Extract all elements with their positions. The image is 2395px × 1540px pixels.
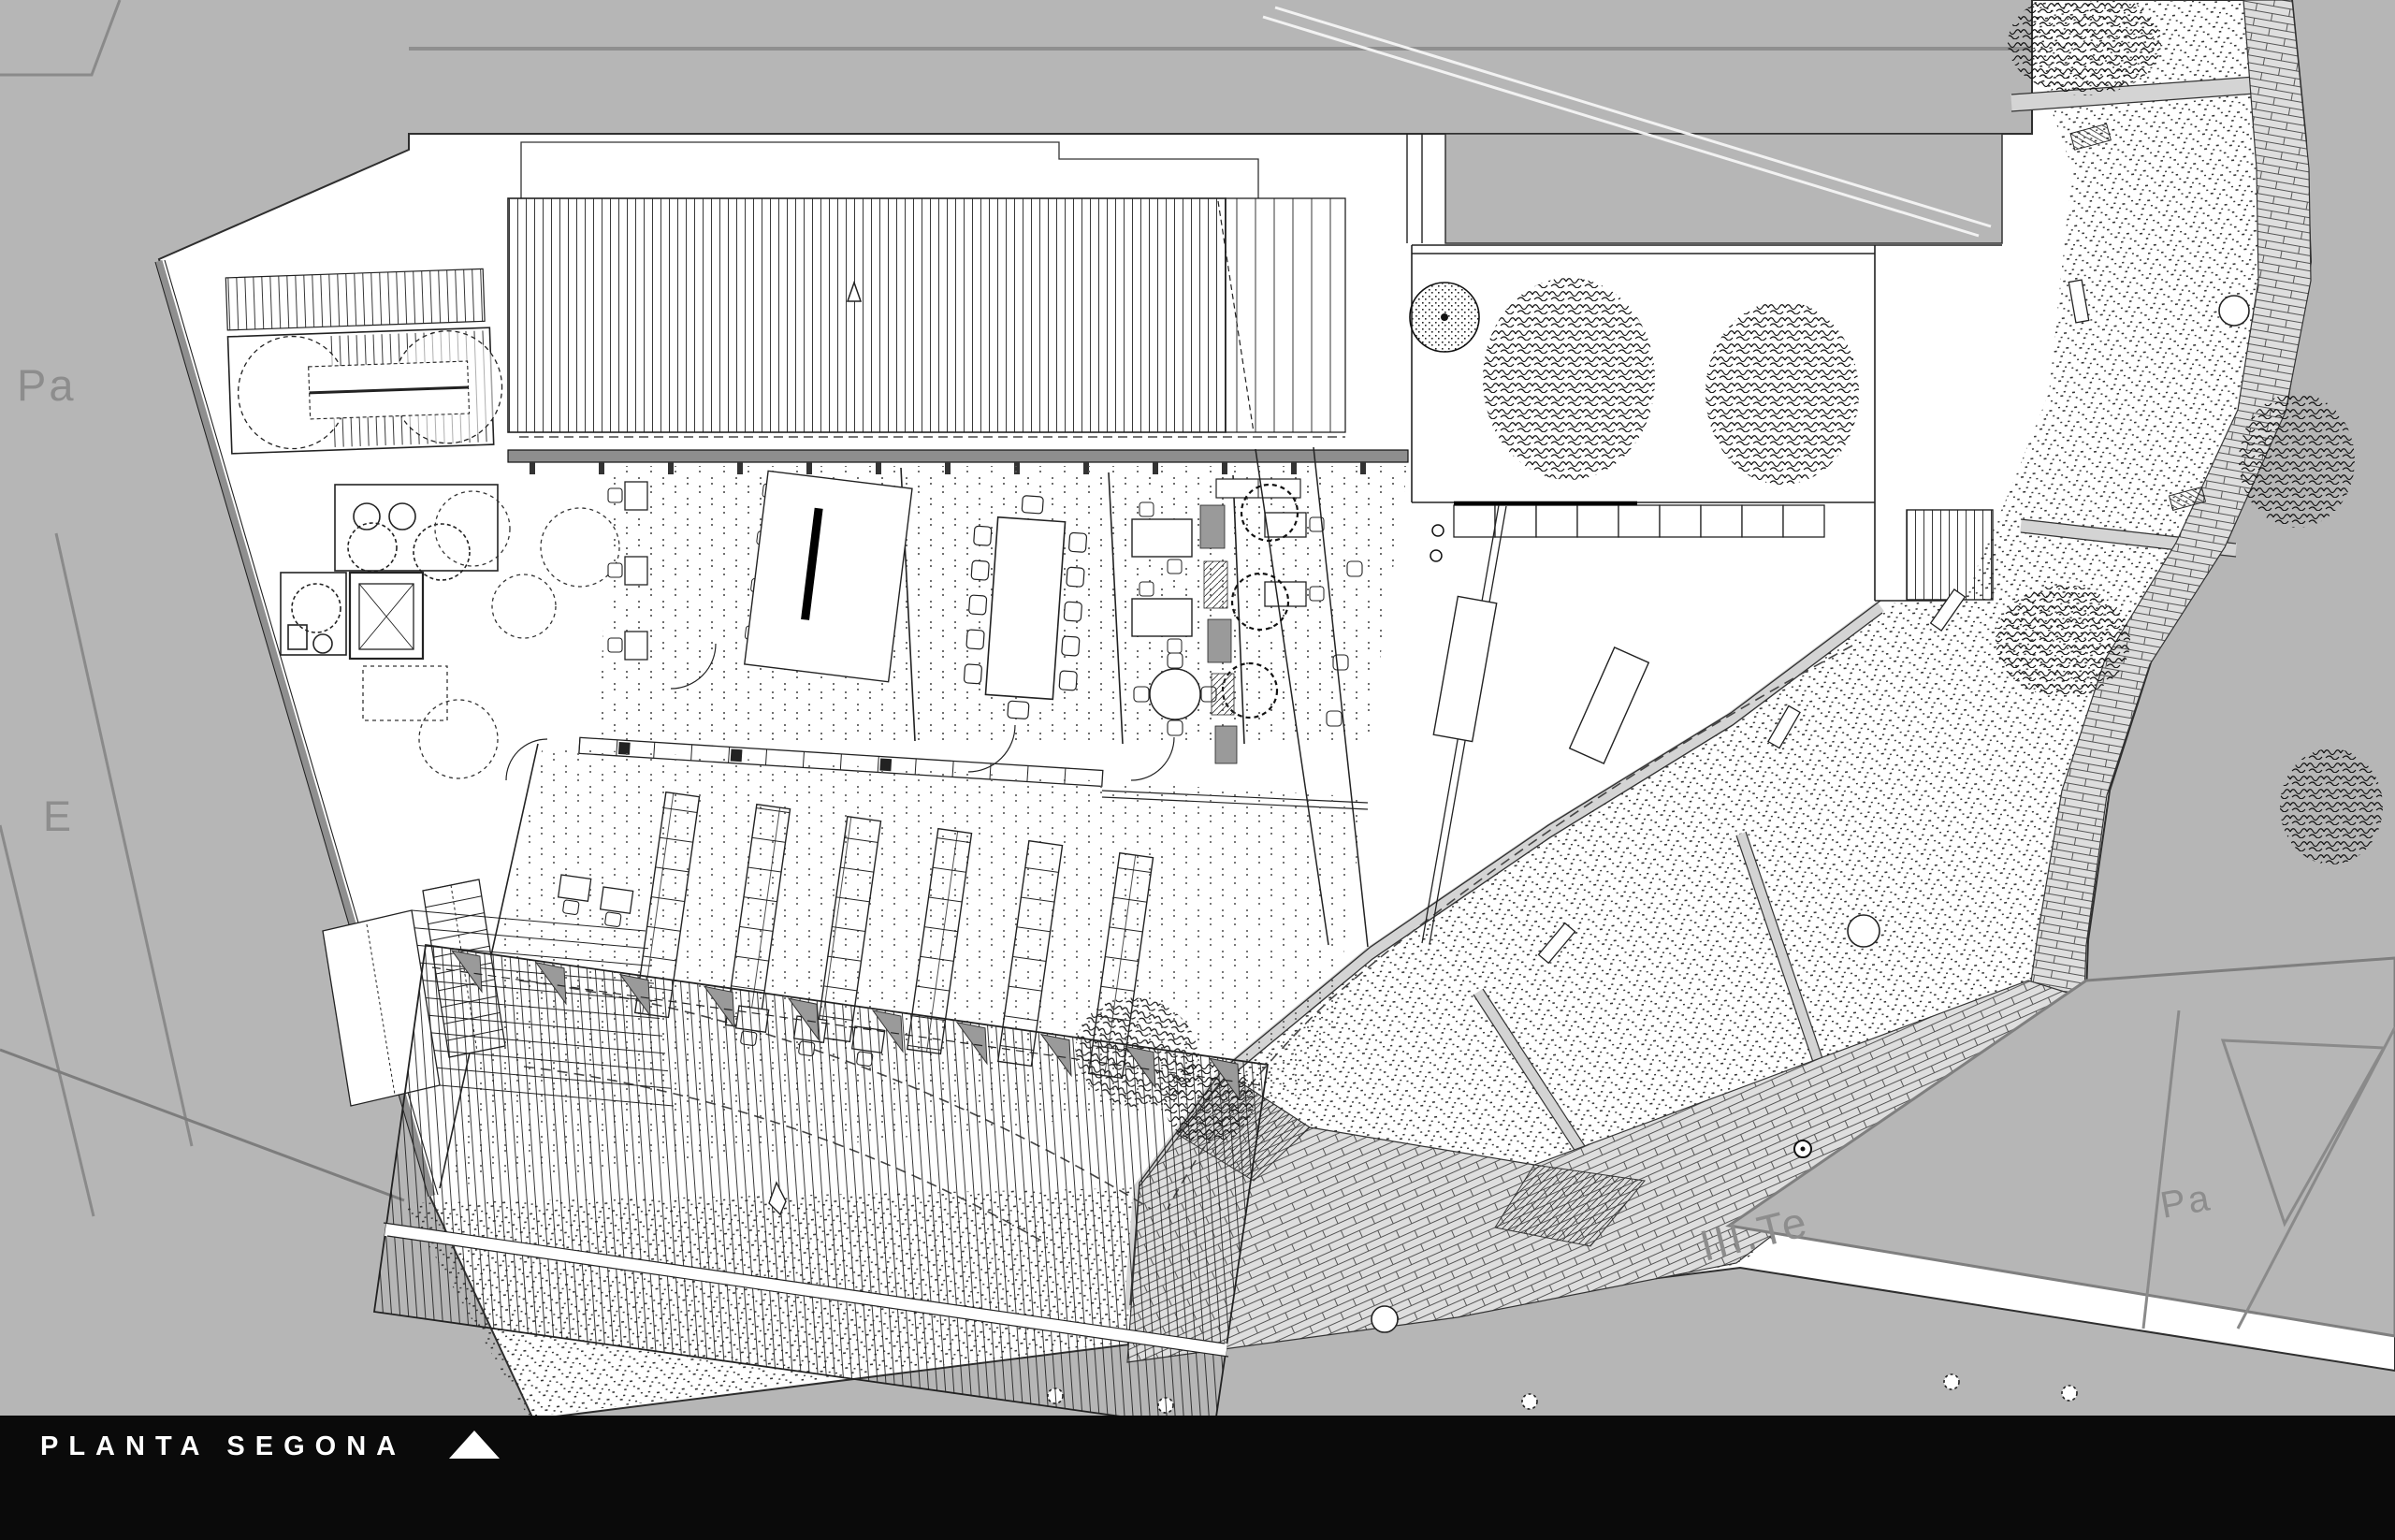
tree-canopy-brick-edge [2280, 748, 2383, 864]
north-arrow-icon [449, 1431, 500, 1459]
tree-canopy-street-right [2239, 393, 2355, 528]
tree-canopy-terrace-2 [1706, 301, 1859, 485]
plan-title: PLANTA SEGONA [40, 1432, 406, 1460]
main-stair-core [225, 269, 503, 454]
terrace-street-stair [1907, 510, 1993, 600]
tree-canopy-street-mid [1996, 585, 2130, 697]
terrace-bench-row [1454, 505, 1824, 537]
title-bar: PLANTA SEGONA [0, 1416, 2395, 1540]
round-table [1150, 669, 1200, 719]
label-block-left: E [43, 792, 74, 840]
meeting-table [985, 517, 1065, 700]
tree-pit-1 [2219, 296, 2249, 326]
label-parcel-bottom-right: Pa [2157, 1177, 2215, 1227]
tree-pit-3 [1372, 1306, 1398, 1332]
tree-canopy-terrace-1 [1483, 278, 1655, 480]
workstation-cluster [745, 471, 912, 681]
tree-pit-2 [1848, 915, 1880, 947]
office-zone [597, 466, 1408, 744]
plan-sheet: Pa E III.Te Pa PLANTA SEGONA [0, 0, 2395, 1540]
elevator [350, 573, 423, 659]
label-parcel-top-left: Pa [17, 360, 77, 410]
floor-plan-drawing: Pa E III.Te Pa [0, 0, 2395, 1540]
